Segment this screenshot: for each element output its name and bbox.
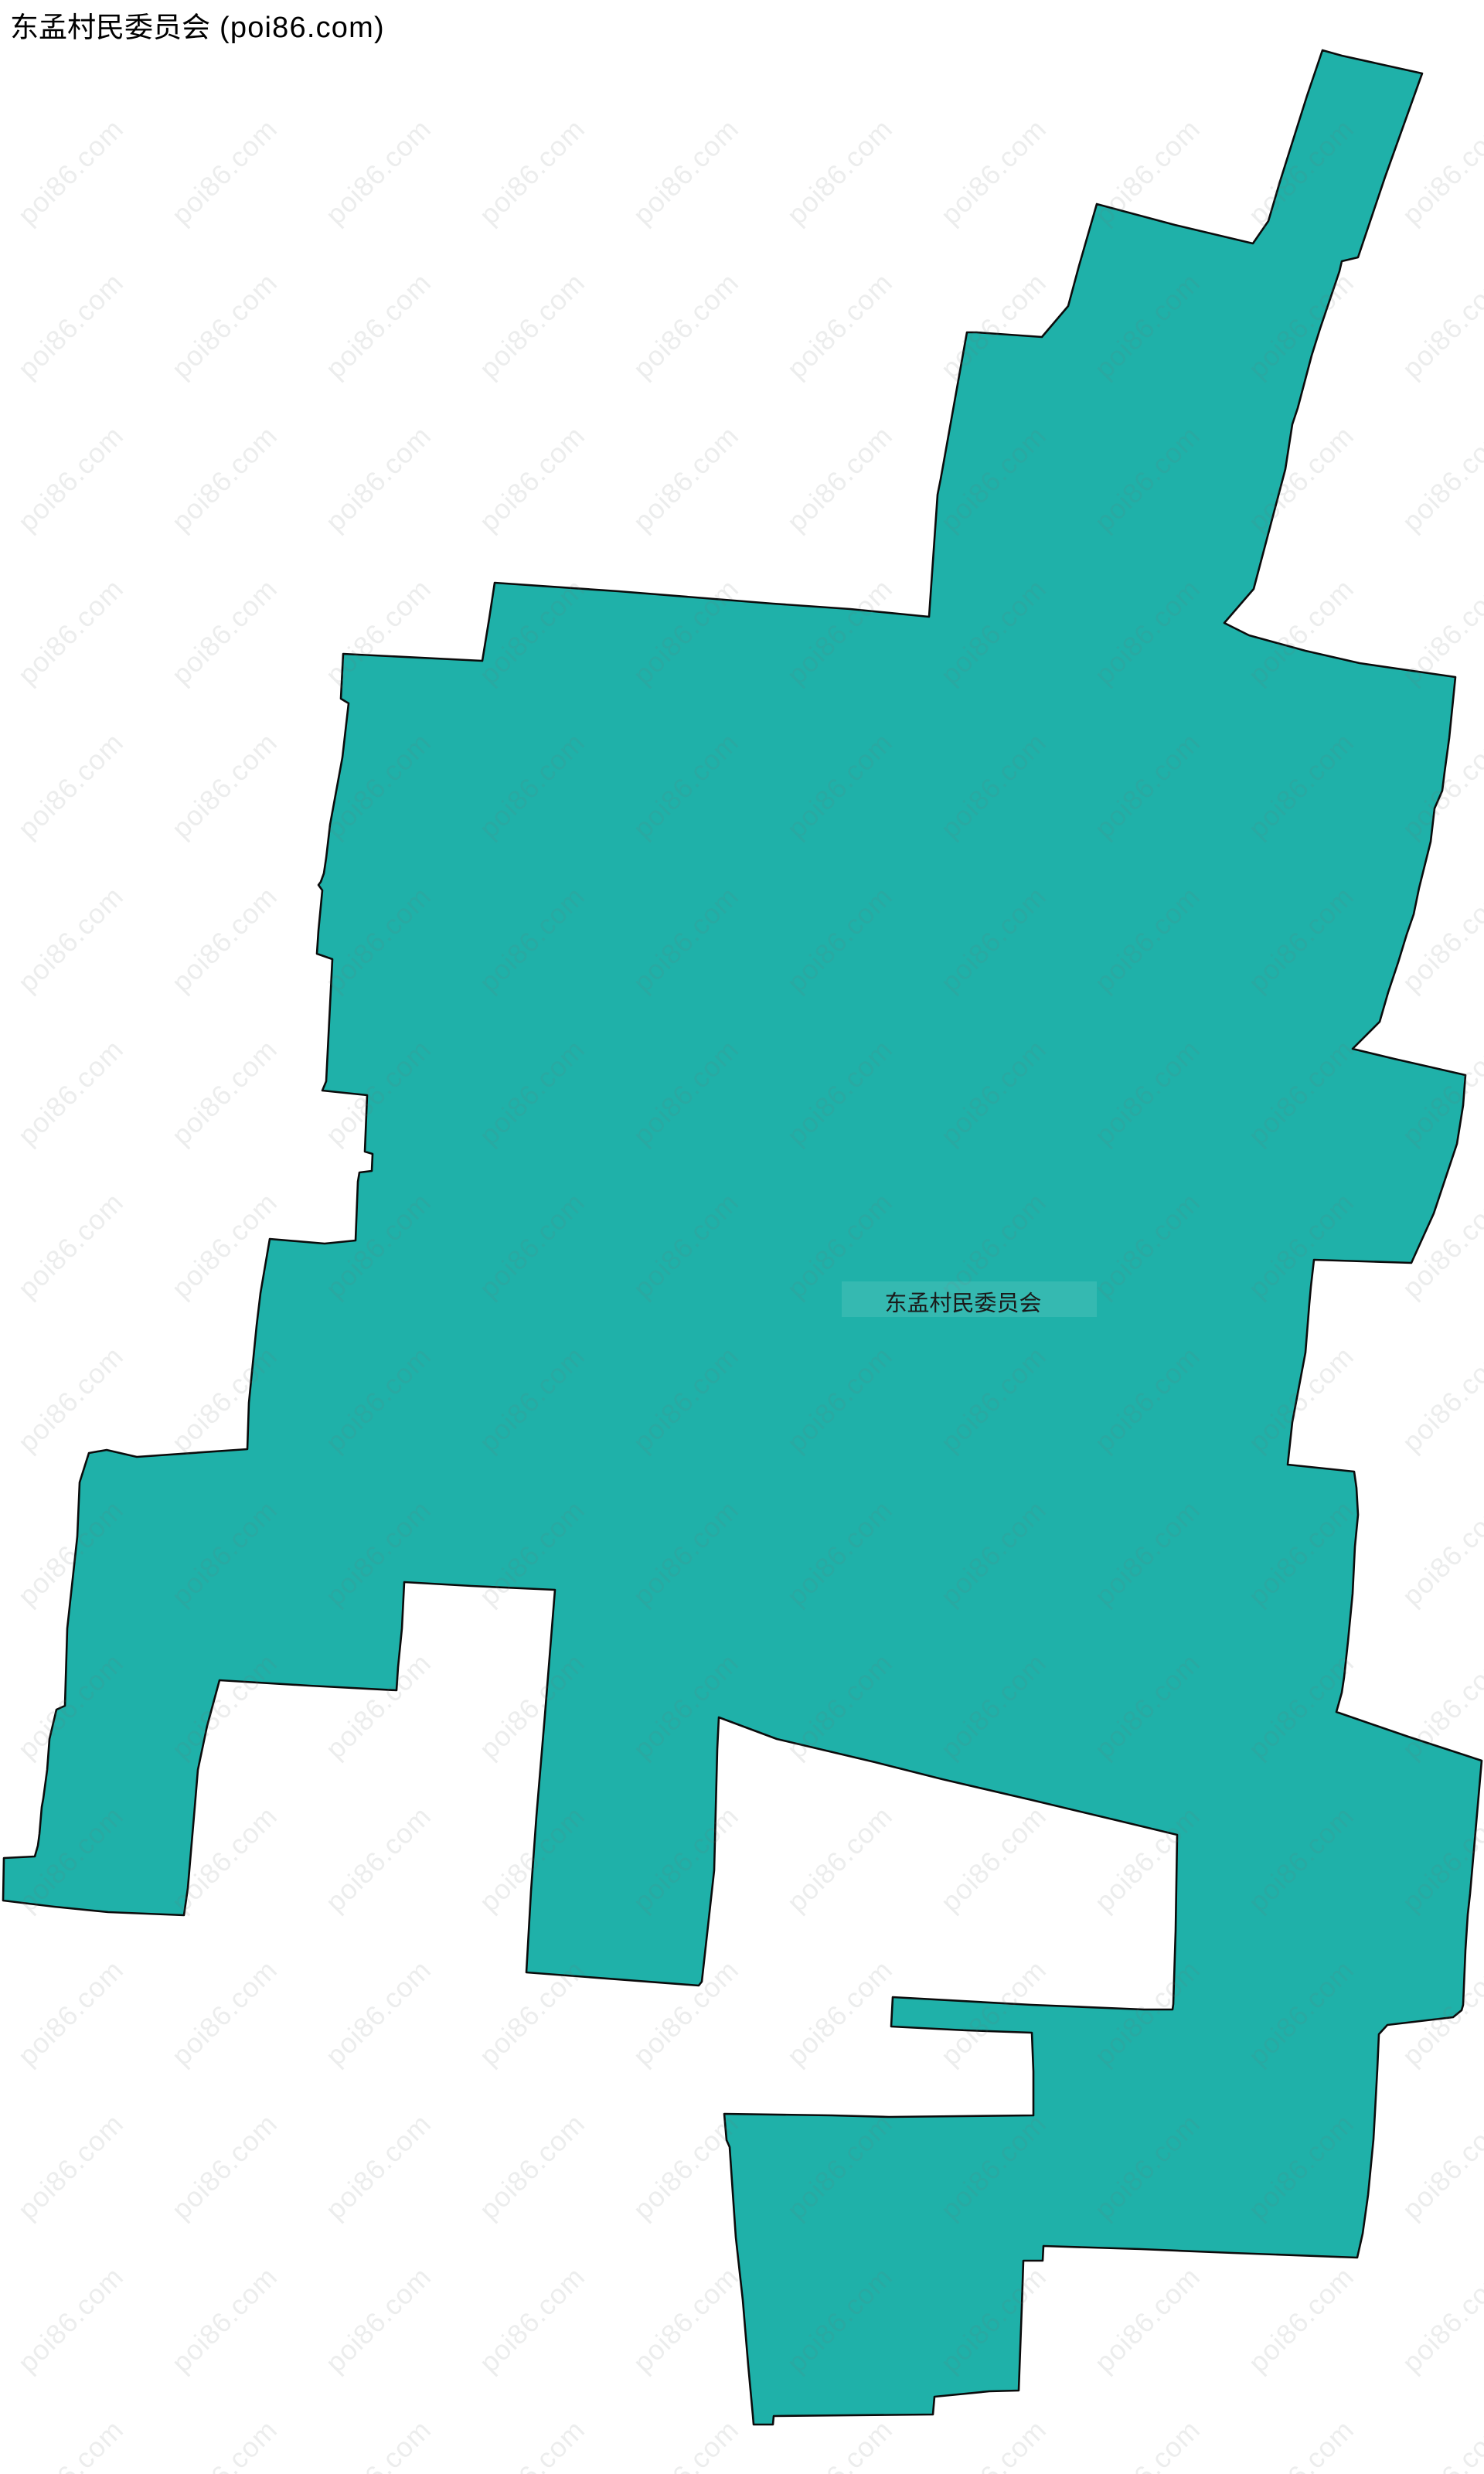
- svg-text:(poi86.com): (poi86.com): [220, 12, 385, 44]
